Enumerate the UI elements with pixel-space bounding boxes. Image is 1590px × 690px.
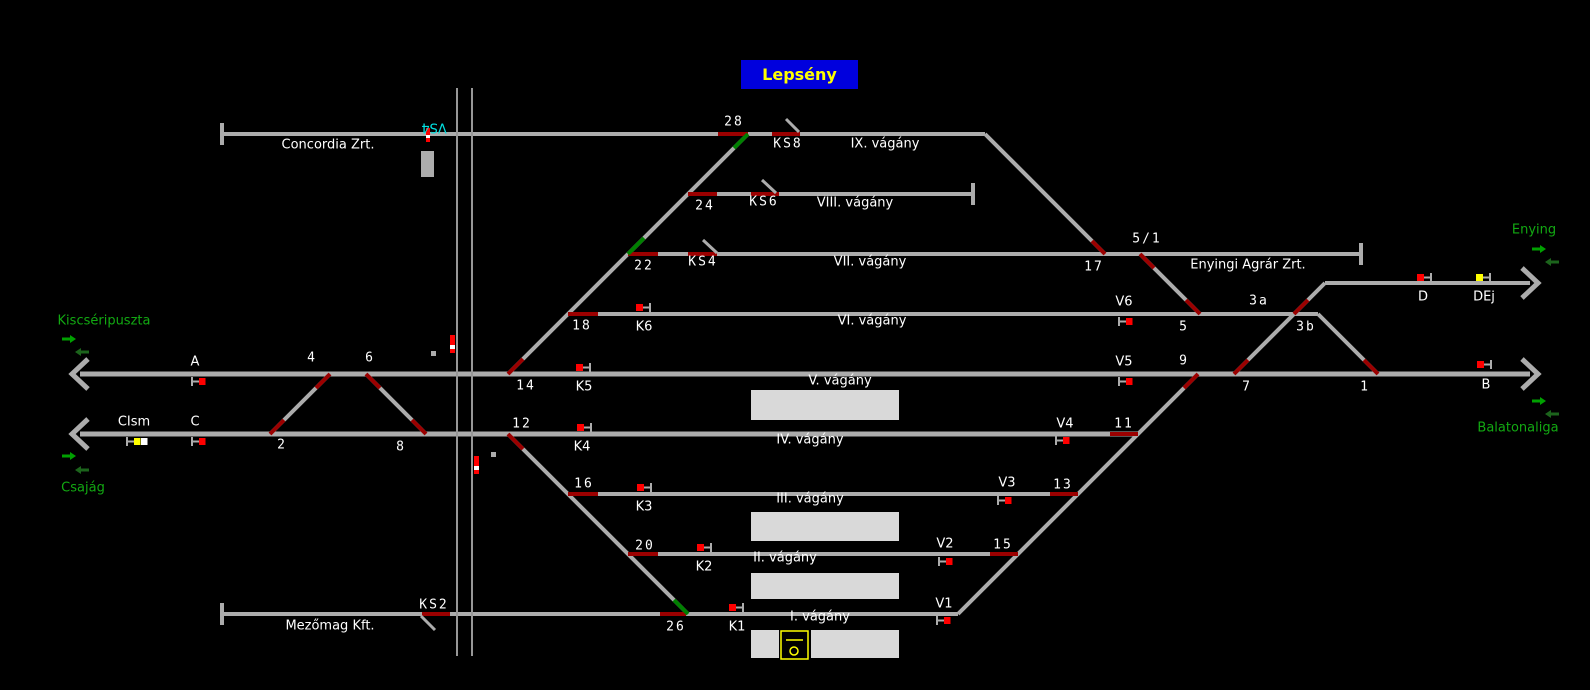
signal-K4[interactable] <box>577 424 584 431</box>
direction-arrow-balatonaliga-in <box>1545 410 1559 418</box>
station-name-Csaj-g: Csajág <box>61 481 105 496</box>
shunt-signal-tick-ks2 <box>421 616 435 630</box>
signal-V5[interactable] <box>1126 378 1133 385</box>
signal-V1-arm <box>938 620 944 622</box>
crossing-signal-lower-seg1 <box>474 466 479 470</box>
bumper-concordia <box>220 123 224 145</box>
signal-label-V3: V3 <box>998 476 1015 491</box>
crossing-signal-upper-seg2 <box>450 349 455 353</box>
switch-label-20[interactable]: 20 <box>635 539 655 554</box>
signal-B-post <box>1490 360 1492 369</box>
signal-label-D: D <box>1418 290 1428 305</box>
signal-label-V1: V1 <box>935 597 952 612</box>
signal-CIsm[interactable] <box>141 438 148 445</box>
station-name-Balatonaliga: Balatonaliga <box>1477 421 1558 436</box>
switch-label-2[interactable]: 2 <box>277 438 287 453</box>
loading-ramp <box>421 151 434 177</box>
track-name-V-v-g-ny: V. vágány <box>808 374 872 389</box>
switch-label-24[interactable]: 24 <box>695 199 715 214</box>
signal-K5[interactable] <box>576 364 583 371</box>
switch-label-8[interactable]: 8 <box>396 440 406 455</box>
direction-arrow-enying-out <box>1532 245 1546 253</box>
switch-label-4[interactable]: 4 <box>307 351 317 366</box>
switch-label-1[interactable]: 1 <box>1360 380 1370 395</box>
switch-label-12[interactable]: 12 <box>512 417 532 432</box>
signal-V1[interactable] <box>944 617 951 624</box>
signal-K4-arm <box>584 427 590 429</box>
signal-K5-post <box>589 363 591 372</box>
switch-label-26[interactable]: 26 <box>666 620 686 635</box>
track-name-VI-v-g-ny: VI. vágány <box>838 314 907 329</box>
signal-V3[interactable] <box>1005 497 1012 504</box>
direction-arrow-csajag-in <box>75 466 89 474</box>
switch-label-9[interactable]: 9 <box>1179 354 1189 369</box>
signal-K3-arm <box>644 487 650 489</box>
track-name-Enyingi-Agr-r-Zrt-: Enyingi Agrár Zrt. <box>1190 258 1305 273</box>
interlocking-panel: 2824221814121620264628175/15973a3b111131… <box>0 0 1590 690</box>
signal-label-B: B <box>1482 378 1491 393</box>
bumper-viii <box>971 183 975 205</box>
signal-label-V6: V6 <box>1115 295 1132 310</box>
direction-arrow-balatonaliga-out <box>1532 397 1546 405</box>
signal-D-post <box>1430 273 1432 282</box>
switch-segment-5[interactable] <box>1186 300 1200 314</box>
station-title: Lepsény <box>741 60 858 89</box>
track-diagram: 2824221814121620264628175/15973a3b111131… <box>0 0 1590 690</box>
signal-K6-post <box>649 303 651 312</box>
signal-C[interactable] <box>199 438 206 445</box>
crossing-signal-lower-seg2 <box>474 470 479 474</box>
signal-label-C: C <box>190 415 199 430</box>
switch-label-17[interactable]: 17 <box>1084 260 1104 275</box>
signal-K2-post <box>710 543 712 552</box>
shunt-signal-label-KS8: KS8 <box>773 137 802 152</box>
switch-segment-route-28[interactable] <box>734 134 748 148</box>
signal-C-post <box>191 437 193 446</box>
shunt-signal-label-KS6: KS6 <box>749 195 778 210</box>
signal-DEj[interactable] <box>1476 274 1483 281</box>
signal-DEj-post <box>1489 273 1491 282</box>
signal-D[interactable] <box>1417 274 1424 281</box>
signal-C-arm <box>193 441 199 443</box>
switch-label-15[interactable]: 15 <box>993 538 1013 553</box>
signal-V4-arm <box>1057 440 1063 442</box>
track-name-II-v-g-ny: II. vágány <box>753 551 817 566</box>
switch-label-11[interactable]: 11 <box>1114 417 1134 432</box>
signal-CIsm-post <box>126 437 128 446</box>
signal-DEj-arm <box>1483 277 1489 279</box>
signal-label-K2: K2 <box>696 560 713 575</box>
crossing-signal-vs4-seg2 <box>426 138 430 142</box>
signal-label-A: A <box>191 355 200 370</box>
switch-segment-3a[interactable] <box>1294 300 1308 314</box>
signal-B[interactable] <box>1477 361 1484 368</box>
signal-K2[interactable] <box>697 544 704 551</box>
signal-A[interactable] <box>199 378 206 385</box>
platform-iii-ii <box>751 512 899 541</box>
track-name-IV-v-g-ny: IV. vágány <box>776 433 843 448</box>
track-fan-down <box>508 434 688 614</box>
switch-label-3a[interactable]: 3a <box>1249 294 1269 309</box>
signal-V5-post <box>1118 377 1120 386</box>
track-ix-bend <box>985 134 1105 254</box>
signal-K2-arm <box>704 547 710 549</box>
track-name-Mez-mag-Kft-: Mezőmag Kft. <box>285 619 374 634</box>
signal-V4[interactable] <box>1063 437 1070 444</box>
platform-i-right <box>811 630 899 658</box>
track-name-Concordia-Zrt-: Concordia Zrt. <box>282 138 375 153</box>
signal-label-V5: V5 <box>1115 355 1132 370</box>
signal-V2-post <box>938 557 940 566</box>
bumper-enyingi <box>1359 243 1363 265</box>
signal-label-K1: K1 <box>729 620 746 635</box>
switch-label-18[interactable]: 18 <box>572 319 592 334</box>
crossing-signal-upper-seg1 <box>450 345 455 349</box>
station-name-Enying: Enying <box>1512 223 1556 238</box>
track-name-III-v-g-ny: III. vágány <box>776 492 844 507</box>
signal-label-V4: V4 <box>1056 417 1073 432</box>
signal-label-K5: K5 <box>576 380 593 395</box>
track-name-I-v-g-ny: I. vágány <box>790 610 850 625</box>
signal-K3-post <box>650 483 652 492</box>
switch-label-22[interactable]: 22 <box>634 259 654 274</box>
station-name-Kiscs-ripuszta: Kiscséripuszta <box>58 314 151 329</box>
signal-K4-post <box>590 423 592 432</box>
bumper-mezomag <box>220 603 224 625</box>
switch-label-5-1[interactable]: 5/1 <box>1132 232 1161 247</box>
signal-K6[interactable] <box>636 304 643 311</box>
switch-label-13[interactable]: 13 <box>1053 478 1073 493</box>
shunt-signal-label-KS2: KS2 <box>419 598 448 613</box>
signal-K1-post <box>742 603 744 612</box>
signal-K3[interactable] <box>637 484 644 491</box>
track-name-IX-v-g-ny: IX. vágány <box>851 137 920 152</box>
switch-label-6[interactable]: 6 <box>365 351 375 366</box>
signal-V6[interactable] <box>1126 318 1133 325</box>
signal-label-CIsm: CIsm <box>118 415 150 430</box>
direction-arrow-enying-in <box>1545 258 1559 266</box>
signal-A-arm <box>193 381 199 383</box>
signal-label-K4: K4 <box>574 440 591 455</box>
marker-lower <box>491 452 496 457</box>
signal-K6-arm <box>643 307 649 309</box>
switch-segment-route-26[interactable] <box>674 600 688 614</box>
shunt-signal-tick-ks6 <box>762 180 776 193</box>
platform-v-iv <box>751 390 899 420</box>
signal-CIsm[interactable] <box>134 438 141 445</box>
crossing-label-VS4: VS4 <box>421 120 446 135</box>
signal-V2-arm <box>940 561 946 563</box>
marker-upper <box>431 351 436 356</box>
shunt-signal-tick-ks4 <box>703 240 717 253</box>
signal-V6-post <box>1118 317 1120 326</box>
switch-segment-route-22[interactable] <box>628 238 644 254</box>
direction-arrow-kiscseripuszta-out <box>62 335 76 343</box>
platform-i-left <box>751 630 779 658</box>
signal-V6-arm <box>1120 321 1126 323</box>
switch-segment-5-1[interactable] <box>1140 254 1154 268</box>
signal-label-K3: K3 <box>636 500 653 515</box>
direction-arrow-kiscseripuszta-in <box>75 348 89 356</box>
track-name-VIII-v-g-ny: VIII. vágány <box>817 196 894 211</box>
signal-V3-post <box>997 496 999 505</box>
signal-D-arm <box>1424 277 1430 279</box>
switch-label-7[interactable]: 7 <box>1242 380 1252 395</box>
signal-label-K6: K6 <box>636 320 653 335</box>
crossing-signal-lower-seg0[interactable] <box>474 456 479 466</box>
direction-arrow-csajag-out <box>62 452 76 460</box>
shunt-signal-label-KS4: KS4 <box>688 255 717 270</box>
signal-A-post <box>191 377 193 386</box>
platform-ii-i <box>751 573 899 599</box>
signal-CIsm-arm <box>128 441 134 443</box>
signal-V2[interactable] <box>946 558 953 565</box>
crossing-signal-upper-seg0[interactable] <box>450 335 455 345</box>
signal-V3-arm <box>999 500 1005 502</box>
signal-V4-post <box>1055 436 1057 445</box>
track-name-VII-v-g-ny: VII. vágány <box>834 255 907 270</box>
signal-K1-arm <box>736 607 742 609</box>
signal-K5-arm <box>583 367 589 369</box>
signal-K1[interactable] <box>729 604 736 611</box>
signal-label-DEj: DEj <box>1473 290 1495 305</box>
signal-B-arm <box>1484 364 1490 366</box>
switch-label-3b[interactable]: 3b <box>1296 320 1316 335</box>
signal-V5-arm <box>1120 381 1126 383</box>
signal-V1-post <box>936 616 938 625</box>
shunt-signal-tick-ks8 <box>786 119 799 132</box>
switch-label-5[interactable]: 5 <box>1179 320 1189 335</box>
station-building-clock <box>790 647 798 655</box>
switch-label-16[interactable]: 16 <box>574 477 594 492</box>
switch-label-14[interactable]: 14 <box>516 379 536 394</box>
signal-label-V2: V2 <box>936 537 953 552</box>
switch-label-28[interactable]: 28 <box>724 115 744 130</box>
